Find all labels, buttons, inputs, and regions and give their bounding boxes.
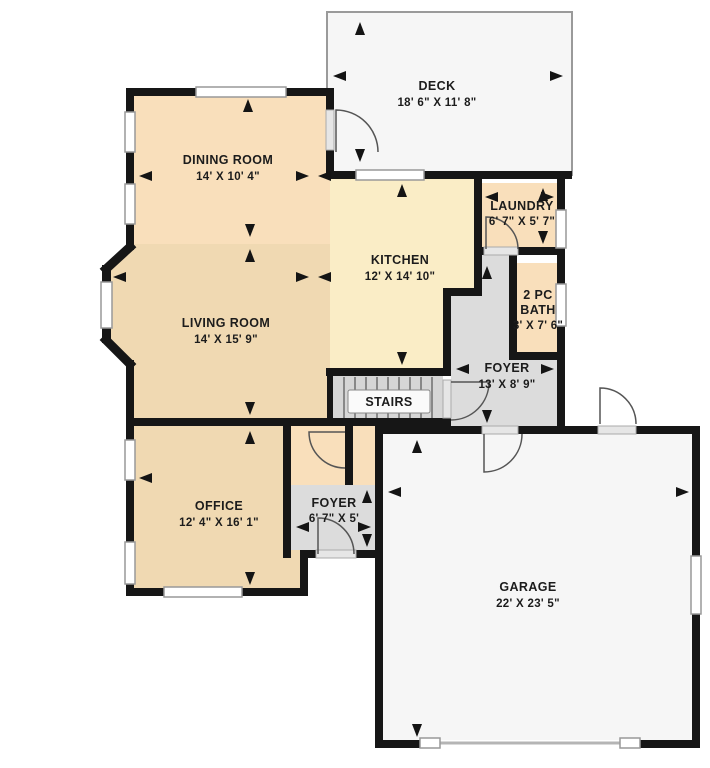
window-dining-left-2 [125, 184, 135, 224]
room-label-dining: DINING ROOM [183, 153, 274, 167]
window-office-bottom [164, 587, 242, 597]
room-label-laundry: LAUNDRY [490, 199, 554, 213]
window-living-bay [101, 282, 112, 328]
room-label-stairs: STAIRS [365, 395, 412, 409]
door-garage-exterior [600, 388, 636, 424]
window-laundry-right [556, 210, 566, 248]
room-dims-foyer-main: 13' X 8' 9" [478, 379, 535, 391]
room-living [111, 244, 330, 418]
room-dining [134, 96, 330, 244]
room-dims-dining: 14' X 10' 4" [196, 171, 260, 183]
room-label-foyer-small: FOYER [311, 496, 356, 510]
window-garage-right [691, 556, 701, 614]
floor-plan: DECK 18' 6" X 11' 8" DINING ROOM 14' X 1… [0, 0, 710, 768]
room-label-garage: GARAGE [499, 580, 556, 594]
window-office-left-1 [125, 440, 135, 480]
room-label-foyer-main: FOYER [484, 361, 529, 375]
room-dims-office: 12' 4" X 16' 1" [179, 517, 259, 529]
garage-door-post-right [620, 738, 640, 748]
window-kitchen-top [356, 170, 424, 180]
window-dining-left-1 [125, 112, 135, 152]
room-dims-kitchen: 12' X 14' 10" [365, 271, 435, 283]
room-label-living: LIVING ROOM [182, 316, 270, 330]
room-label-kitchen: KITCHEN [371, 253, 429, 267]
window-office-left-2 [125, 542, 135, 584]
room-label-office: OFFICE [195, 499, 243, 513]
room-dims-deck: 18' 6" X 11' 8" [397, 97, 476, 109]
room-dims-garage: 22' X 23' 5" [496, 598, 560, 610]
room-label-bath-2: BATH [520, 303, 555, 317]
room-label-bath-1: 2 PC [523, 288, 552, 302]
garage-door-post-left [420, 738, 440, 748]
room-label-deck: DECK [418, 79, 455, 93]
room-dims-living: 14' X 15' 9" [194, 334, 258, 346]
room-dims-laundry: 6' 7" X 5' 7" [489, 216, 555, 228]
room-hall [291, 426, 375, 485]
window-dining-top [196, 87, 286, 97]
room-dims-foyer-small: 6' 7" X 5' [309, 513, 359, 525]
room-dims-bath: 3' X 7' 6" [513, 320, 563, 332]
floor-plan-svg: DECK 18' 6" X 11' 8" DINING ROOM 14' X 1… [0, 0, 710, 768]
